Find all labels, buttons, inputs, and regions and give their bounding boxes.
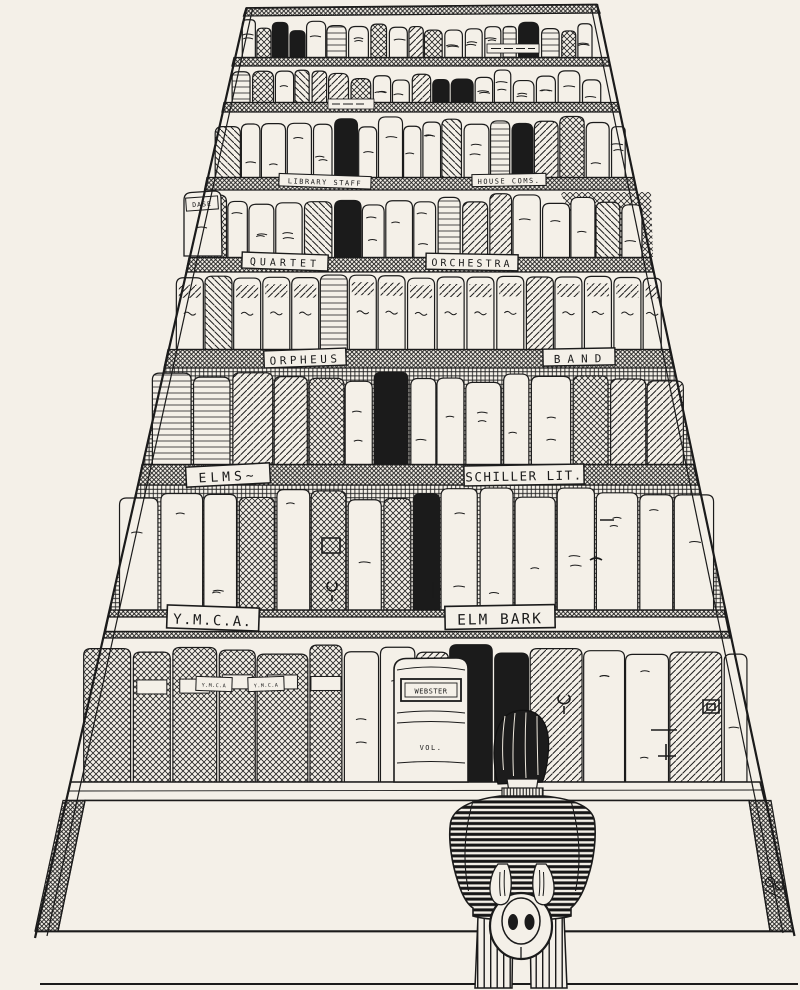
book-spine: [314, 124, 333, 177]
book-spine: [491, 121, 510, 178]
book-spine: [542, 29, 560, 58]
book-spine: [349, 26, 369, 57]
bookshelf-row-4: [176, 275, 661, 349]
book-spine: [674, 495, 713, 610]
shelf-label-ymca: Y.M.C.A.: [167, 605, 260, 631]
book-spine: [335, 201, 361, 258]
book-spine: [536, 76, 555, 102]
book-spine: [371, 24, 387, 57]
book-spine: [277, 490, 310, 610]
book-spine: [562, 31, 576, 58]
book-spine: [257, 28, 271, 57]
book-spine: [531, 376, 570, 464]
book-spine: [161, 493, 203, 610]
book-spine: [494, 70, 510, 102]
book-spine: [219, 650, 255, 782]
shelf-label-elm-bark: ELM BARK: [445, 605, 555, 630]
book-spine: [513, 195, 540, 258]
book-spine: [504, 374, 529, 464]
book-spine: [348, 500, 381, 610]
shelf-label-house-coms: HOUSE COMS.: [472, 173, 546, 186]
book-spine: [194, 377, 230, 464]
book-spine: [611, 379, 646, 465]
book-spine: [451, 79, 473, 102]
bookshelf-row-6: [120, 488, 714, 610]
book-spine: [534, 121, 558, 177]
bookcase-illustration: LIBRARY STAFF HOUSE COMS. QUARTET ORCHES…: [0, 0, 800, 990]
book-spine: [441, 489, 477, 610]
svg-text:ORPHEUS: ORPHEUS: [269, 352, 340, 367]
book-spine: [345, 381, 372, 464]
book-spine: [558, 71, 580, 103]
book-spine: [512, 124, 533, 178]
book-spine: [327, 26, 346, 58]
book-spine: [414, 202, 436, 258]
book-spine: [241, 124, 260, 177]
svg-text:Y.M.C.A: Y.M.C.A: [254, 683, 279, 690]
book-spine: [295, 70, 309, 102]
book-spine: [640, 495, 673, 610]
shelf-label-schiller-lit: SCHILLER LIT.: [464, 464, 584, 486]
book-spine: [257, 654, 308, 782]
book-spine: [173, 647, 217, 782]
book-spine: [374, 372, 408, 464]
svg-text:WEBSTER: WEBSTER: [414, 688, 447, 696]
book-spine: [249, 204, 274, 257]
book-spine: [596, 493, 637, 610]
svg-text:SCHILLER LIT.: SCHILLER LIT.: [465, 467, 583, 484]
book-spine: [560, 116, 584, 177]
shelf-label-orchestra: ORCHESTRA: [426, 253, 518, 271]
illustration-canvas: LIBRARY STAFF HOUSE COMS. QUARTET ORCHES…: [0, 0, 800, 990]
book-spine: [584, 651, 625, 782]
book-spine: [320, 275, 347, 349]
book-spine: [480, 488, 513, 610]
book-spine: [312, 71, 326, 102]
svg-text:Y.M.C.A.: Y.M.C.A.: [173, 612, 253, 631]
book-spine: [276, 203, 302, 258]
book-spine: [290, 31, 305, 58]
shelf-label-quartet: QUARTET: [242, 252, 329, 271]
book-spine: [392, 80, 409, 102]
book-spine: [582, 80, 600, 103]
book-spine: [233, 373, 273, 465]
book-spine: [261, 124, 285, 178]
book-spine: [133, 652, 170, 782]
book-spine: [120, 498, 158, 610]
book-spine: [438, 197, 460, 257]
book-spine-tag: [137, 680, 167, 694]
svg-text:HOUSE COMS.: HOUSE COMS.: [478, 177, 541, 186]
book-spine: [84, 649, 131, 782]
svg-text:VOL.: VOL.: [420, 744, 443, 752]
book-spine: [464, 124, 489, 177]
base-back-panel: [58, 801, 770, 932]
book-spine: [239, 497, 274, 610]
book-spine: [275, 71, 293, 102]
shelf-label-orpheus: ORPHEUS: [264, 348, 347, 368]
book-spine: [724, 654, 747, 782]
book-spine: [578, 24, 592, 58]
book-spine: [287, 123, 311, 177]
illegible-label: [487, 44, 539, 53]
illegible-label: [328, 99, 374, 109]
book-spine: [515, 497, 555, 610]
book-spine: [490, 194, 512, 258]
book-spine: [359, 127, 377, 178]
book-spine-tag: [311, 676, 341, 690]
book-spine: [362, 205, 384, 258]
book-spine: [310, 645, 342, 782]
book-spine: [445, 30, 463, 57]
book-ymca-spine-b: Y.M.C.A: [248, 676, 284, 691]
book-spine: [586, 123, 609, 178]
book-spine: [433, 80, 449, 103]
book-spine: [309, 378, 344, 464]
book-spine: [344, 652, 378, 782]
book-spine: [152, 373, 191, 464]
book-spine: [413, 494, 439, 610]
book-spine: [409, 27, 423, 58]
svg-text:ORCHESTRA: ORCHESTRA: [431, 258, 512, 270]
book-spine: [423, 122, 441, 177]
book-spine: [424, 30, 442, 57]
book-spine: [205, 276, 232, 349]
book-spine: [475, 77, 492, 102]
book-spine: [612, 127, 626, 178]
book-spine: [253, 71, 274, 102]
book-spine: [384, 498, 411, 610]
book-spine: [404, 126, 421, 177]
svg-text:ELMS~: ELMS~: [198, 468, 258, 486]
svg-text:Y.M.C.A: Y.M.C.A: [202, 683, 227, 690]
book-spine: [304, 202, 331, 258]
book-spine: [626, 654, 669, 782]
book-spine: [466, 382, 501, 464]
book-spine: [596, 202, 620, 257]
book-spine: [274, 377, 307, 465]
svg-text:ELM BARK: ELM BARK: [457, 611, 543, 628]
shelf-label-band: BAND: [543, 348, 615, 366]
book-spine: [373, 76, 390, 103]
book-spine: [442, 119, 462, 177]
book-spine: [412, 74, 430, 102]
book-spine: [307, 21, 326, 57]
book-spine: [215, 127, 240, 178]
book-spine: [386, 201, 413, 258]
book-spine: [272, 23, 288, 58]
book-spine: [463, 202, 488, 258]
book-spine: [329, 73, 349, 102]
book-spine: [513, 81, 534, 103]
book-spine: [557, 488, 594, 610]
book-spine: [465, 29, 482, 58]
shelf-label-library-staff: LIBRARY STAFF: [279, 173, 371, 189]
book-spine: [411, 379, 436, 465]
book-spine: [622, 205, 642, 258]
book-spine: [543, 203, 570, 257]
book-spine: [389, 27, 407, 57]
book-ymca-spine-a: Y.M.C.A: [196, 676, 232, 691]
book-spine: [647, 381, 683, 465]
book-spine: [571, 197, 595, 257]
book-spine: [670, 652, 722, 782]
book-spine: [378, 117, 402, 178]
book-spine: [228, 201, 247, 257]
book-spine: [335, 119, 358, 178]
book-spine: [526, 277, 553, 350]
book-spine: [573, 376, 608, 465]
svg-text:BAND: BAND: [554, 352, 609, 366]
shelf-label-elms: ELMS~: [186, 463, 271, 487]
book-webster: WEBSTER VOL.: [394, 658, 468, 782]
book-spine: [437, 378, 464, 464]
